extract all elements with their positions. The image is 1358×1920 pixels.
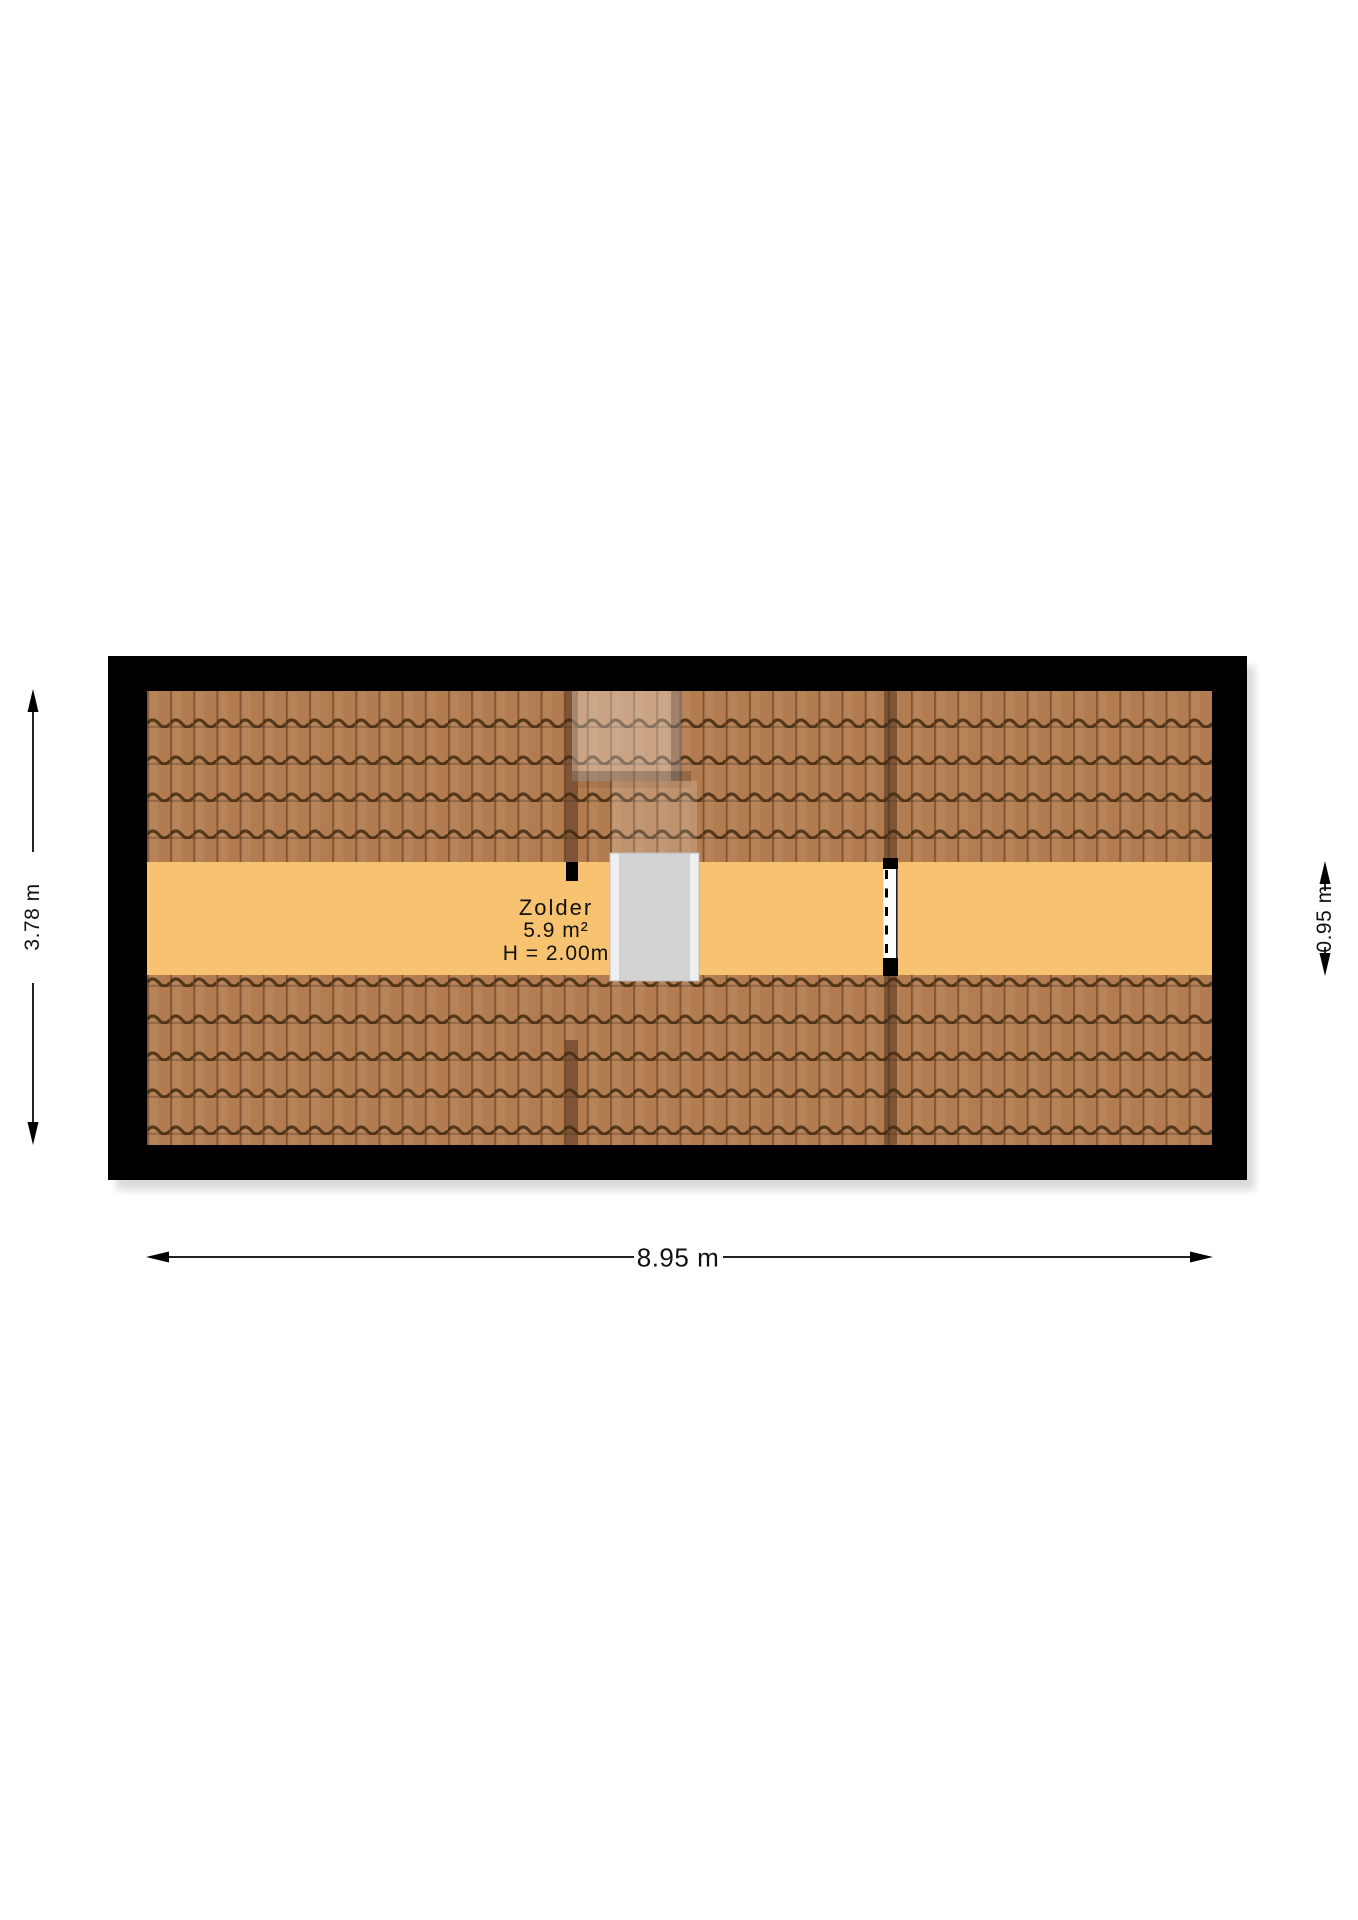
room-name: Zolder: [503, 896, 609, 919]
arrowhead-up: [28, 689, 39, 712]
ridge-wall-right-lower: [884, 975, 897, 1145]
ridge-wall-left-lower: [565, 1040, 578, 1145]
dim-bottom-label: 8.95 m: [637, 1243, 720, 1274]
arrowhead-right: [1190, 1252, 1213, 1263]
doorway-stub-bottom: [883, 958, 898, 976]
skylight-glass: [619, 853, 690, 981]
floorplan-drawing: [0, 0, 1358, 1920]
skylight-window: [610, 853, 699, 981]
doorway-stub-top: [883, 858, 898, 869]
ridge-wall-left-stub: [566, 862, 578, 881]
dim-right-label: 0.95 m: [1313, 885, 1337, 952]
room-area: 5.9 m²: [503, 919, 609, 942]
doorway-opening: [883, 858, 898, 976]
dim-left-label: 3.78 m: [21, 883, 45, 950]
ridge-wall-right-upper: [884, 691, 897, 862]
roof-bottom: [147, 975, 1212, 1145]
arrowhead-down: [1320, 953, 1331, 976]
room-label: Zolder 5.9 m² H = 2.00m: [503, 896, 609, 965]
dormer-shadow-right: [671, 691, 681, 781]
floorplan-page: Zolder 5.9 m² H = 2.00m 3.78 m 0.95 m 8.…: [0, 0, 1358, 1920]
dormer-overlay: [572, 691, 681, 781]
arrowhead-up: [1320, 861, 1331, 884]
dormer-shadow-bottom: [572, 771, 691, 781]
arrowhead-down: [28, 1122, 39, 1145]
room-ceiling-height: H = 2.00m: [503, 942, 609, 965]
arrowhead-left: [146, 1252, 169, 1263]
skylight-shaft: [612, 781, 697, 862]
